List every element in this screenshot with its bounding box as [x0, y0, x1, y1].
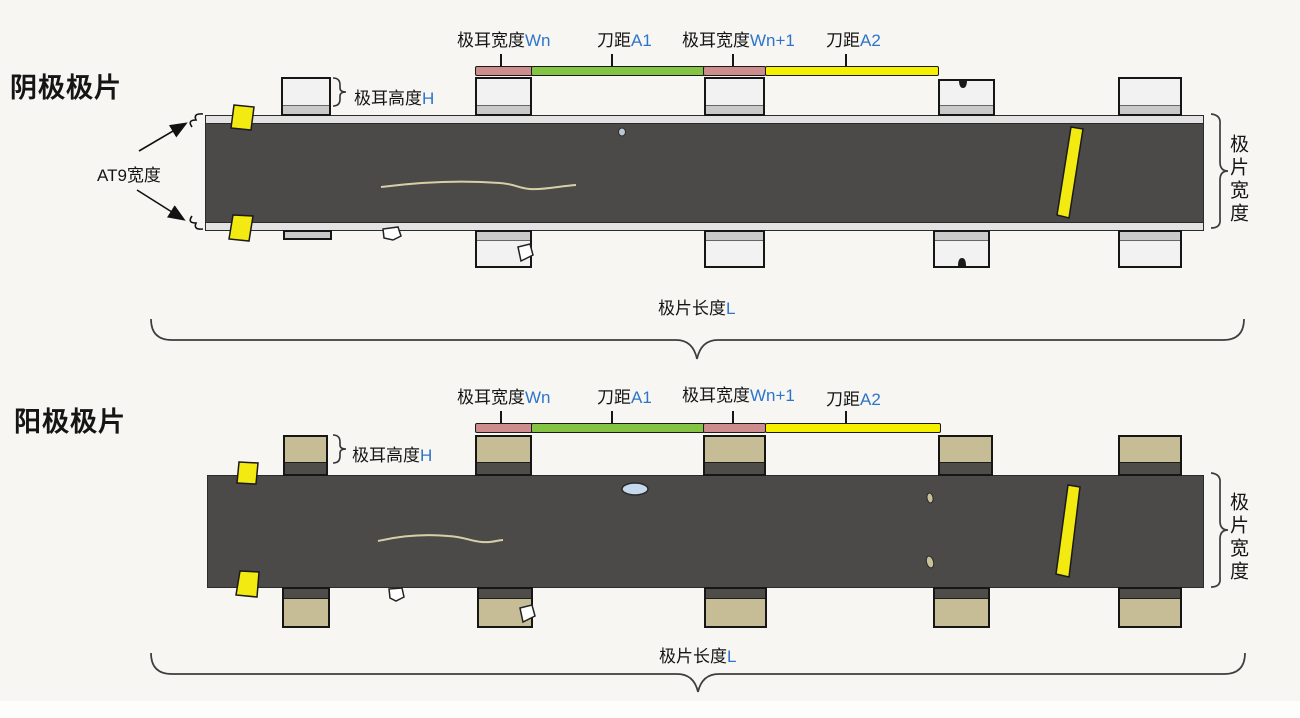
- at9-edge-curl-lower: [190, 216, 203, 229]
- anode-tab-height-bracket: [333, 435, 346, 463]
- dimension-tick: [500, 54, 502, 66]
- tab-width-text: 极耳宽度: [682, 386, 750, 405]
- dimension-tick: [732, 54, 734, 66]
- anode-knife-a1-bar: [531, 423, 705, 433]
- cathode-tab-width-wn-label: 极耳宽度Wn: [457, 26, 551, 51]
- cathode-knife-a2-bar: [765, 66, 939, 76]
- anode-bottom-tab-1: [282, 587, 330, 628]
- a1-variable: A1: [631, 31, 652, 50]
- anode-knife-a2-bar: [765, 423, 941, 433]
- anode-tab-width-bar-1: [475, 423, 533, 433]
- h-variable: H: [420, 446, 432, 465]
- sheet-length-text: 极片长度: [659, 647, 727, 666]
- dimension-tick: [845, 411, 847, 423]
- a1-variable: A1: [631, 388, 652, 407]
- dimension-tick: [732, 411, 734, 423]
- a2-variable: A2: [860, 31, 881, 50]
- cathode-knife-a1-label: 刀距A1: [597, 26, 652, 51]
- cathode-bottom-tab-5: [1118, 230, 1182, 268]
- cathode-sheet-length-label: 极片长度L: [658, 294, 735, 319]
- anode-edge-notch: [389, 588, 404, 601]
- anode-knife-a2-label: 刀距A2: [826, 385, 881, 410]
- dimension-tick: [611, 411, 613, 423]
- anode-knife-a1-label: 刀距A1: [597, 383, 652, 408]
- wn-variable: Wn: [525, 388, 551, 407]
- at9-arrow-upper: [139, 124, 185, 151]
- cathode-strip-coating: [206, 123, 1203, 223]
- anode-tab-width-wn1-label: 极耳宽度Wn+1: [682, 381, 795, 406]
- knife-text: 刀距: [597, 388, 631, 407]
- anode-top-tab-4: [938, 435, 993, 476]
- cathode-strip: [205, 115, 1204, 231]
- cathode-section-title: 阴极极片: [10, 66, 122, 105]
- cathode-top-tab-5: [1118, 77, 1182, 116]
- anode-bottom-tab-5: [1118, 587, 1182, 628]
- knife-text: 刀距: [826, 390, 860, 409]
- cathode-bottom-tab-4: [933, 230, 990, 268]
- sheet-length-text: 极片长度: [658, 299, 726, 318]
- anode-top-tab-2: [475, 435, 532, 476]
- cathode-knife-a1-bar: [531, 66, 705, 76]
- cathode-top-tab-2: [475, 77, 532, 116]
- cathode-bottom-tab-2: [475, 230, 532, 268]
- anode-strip: [207, 475, 1204, 588]
- dimension-tick: [611, 54, 613, 66]
- cathode-tab-width-wn1-label: 极耳宽度Wn+1: [682, 26, 795, 51]
- bottom-margin: [0, 701, 1300, 718]
- wn-variable: Wn: [525, 31, 551, 50]
- cathode-sheet-length-brace: [151, 319, 1244, 359]
- cathode-sheet-width-label: 极片宽度: [1224, 134, 1251, 226]
- wn1-variable: Wn+1: [750, 386, 795, 405]
- cathode-bottom-tab-3: [704, 230, 765, 268]
- cathode-bottom-tab-1-stub: [283, 230, 332, 240]
- anode-tab-width-wn-label: 极耳宽度Wn: [457, 383, 551, 408]
- dimension-tick: [500, 411, 502, 423]
- cathode-knife-a2-label: 刀距A2: [826, 26, 881, 51]
- l-variable: L: [727, 647, 736, 666]
- at9-arrow-lower: [137, 190, 183, 219]
- at9-edge-curl-upper: [190, 114, 203, 127]
- cathode-top-tab-3: [704, 77, 765, 116]
- dimension-tick: [845, 54, 847, 66]
- knife-text: 刀距: [597, 31, 631, 50]
- anode-sheet-width-label: 极片宽度: [1224, 492, 1251, 584]
- anode-top-tab-3: [703, 435, 766, 476]
- anode-bottom-tab-2: [477, 587, 533, 628]
- tab-width-text: 极耳宽度: [682, 31, 750, 50]
- anode-top-tab-5: [1118, 435, 1182, 476]
- anode-sheet-length-label: 极片长度L: [659, 642, 736, 667]
- cathode-top-tab-4: [938, 79, 995, 116]
- anode-tab-width-bar-2: [703, 423, 766, 433]
- tab-width-text: 极耳宽度: [457, 31, 525, 50]
- tab-width-text: 极耳宽度: [457, 388, 525, 407]
- annotation-overlay: [0, 0, 1300, 718]
- tab-height-text: 极耳高度: [352, 446, 420, 465]
- cathode-tab-height-bracket: [333, 78, 346, 106]
- cathode-tab-width-bar-2: [703, 66, 766, 76]
- cathode-top-tab-1: [281, 77, 331, 116]
- cathode-tab-width-bar-1: [475, 66, 533, 76]
- anode-bottom-tab-4: [933, 587, 990, 628]
- a2-variable: A2: [860, 390, 881, 409]
- at9-width-label: AT9宽度: [97, 161, 161, 186]
- l-variable: L: [726, 299, 735, 318]
- anode-section-title: 阳极极片: [14, 400, 126, 439]
- tab-height-text: 极耳高度: [354, 89, 422, 108]
- cathode-tab-height-label: 极耳高度H: [354, 84, 434, 109]
- anode-tab-height-label: 极耳高度H: [352, 441, 432, 466]
- wn1-variable: Wn+1: [750, 31, 795, 50]
- anode-bottom-tab-3: [704, 587, 767, 628]
- knife-text: 刀距: [826, 31, 860, 50]
- h-variable: H: [422, 89, 434, 108]
- anode-top-tab-1: [283, 435, 328, 476]
